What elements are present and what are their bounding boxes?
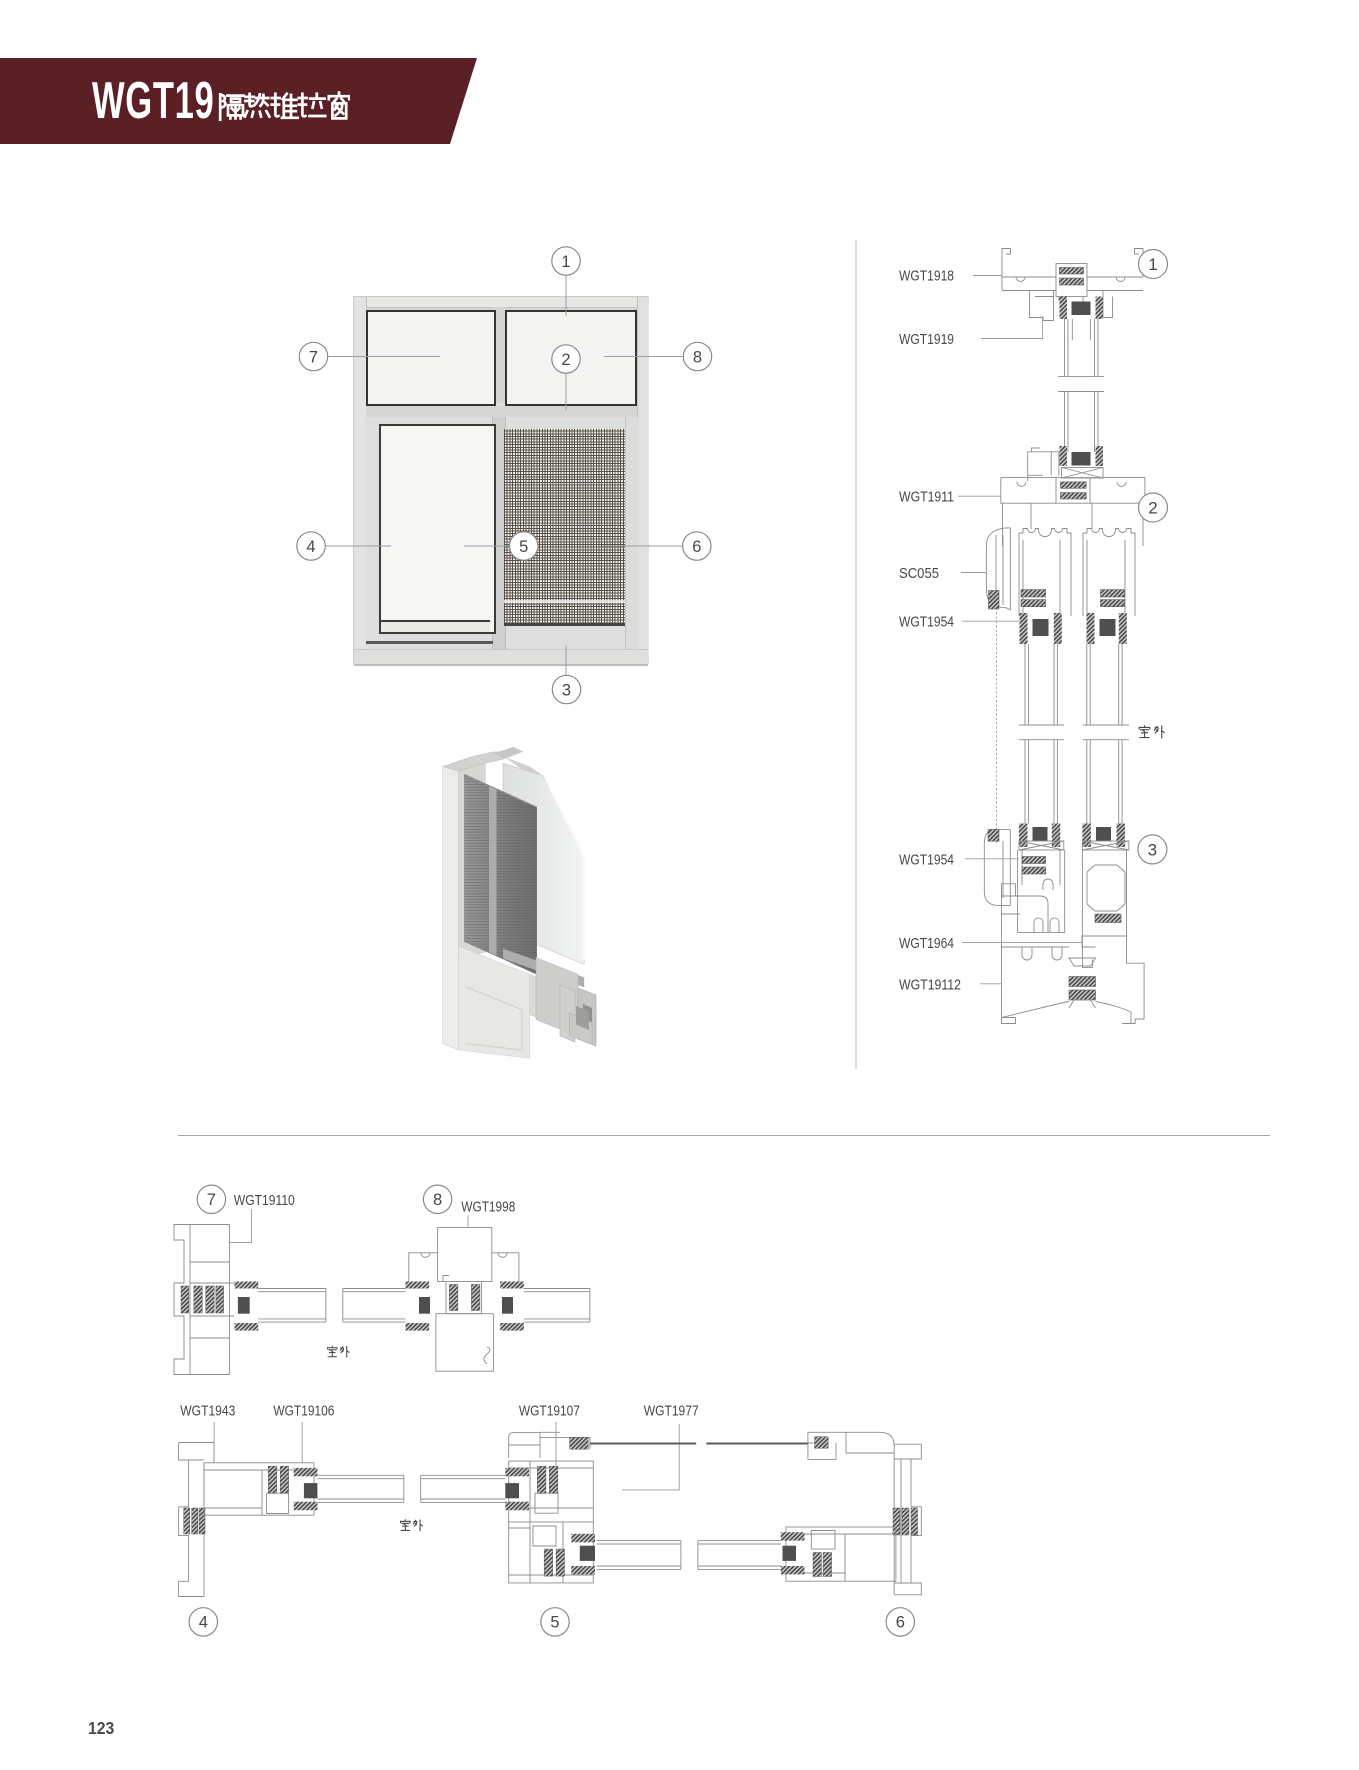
svg-text:6: 6 [896, 1614, 905, 1632]
svg-text:3: 3 [562, 681, 571, 699]
svg-text:7: 7 [207, 1191, 216, 1209]
svg-text:8: 8 [433, 1191, 442, 1209]
svg-text:8: 8 [693, 348, 702, 366]
svg-text:SC055: SC055 [899, 566, 939, 582]
svg-text:1: 1 [1148, 255, 1157, 274]
svg-text:WGT1911: WGT1911 [899, 490, 954, 506]
svg-text:WGT1919: WGT1919 [899, 332, 954, 348]
svg-text:WGT1998: WGT1998 [461, 1200, 515, 1216]
svg-text:WGT19106: WGT19106 [273, 1404, 334, 1420]
svg-text:WGT1954: WGT1954 [899, 853, 954, 869]
svg-text:WGT19110: WGT19110 [234, 1193, 295, 1209]
svg-text:WGT19107: WGT19107 [519, 1404, 580, 1420]
svg-text:WGT1954: WGT1954 [899, 615, 954, 631]
svg-text:5: 5 [550, 1614, 559, 1632]
svg-text:3: 3 [1148, 840, 1157, 859]
svg-text:4: 4 [199, 1614, 208, 1632]
svg-text:4: 4 [306, 538, 315, 556]
svg-text:1: 1 [561, 253, 570, 271]
svg-text:WGT19112: WGT19112 [899, 978, 961, 994]
svg-text:5: 5 [519, 538, 528, 556]
svg-text:WGT1964: WGT1964 [899, 936, 954, 952]
svg-text:2: 2 [561, 351, 570, 369]
svg-text:WGT1977: WGT1977 [644, 1404, 699, 1420]
svg-text:WGT1943: WGT1943 [180, 1404, 235, 1420]
svg-text:6: 6 [692, 538, 701, 556]
svg-text:2: 2 [1148, 499, 1157, 518]
svg-text:7: 7 [309, 348, 318, 366]
svg-text:WGT1918: WGT1918 [899, 269, 954, 285]
